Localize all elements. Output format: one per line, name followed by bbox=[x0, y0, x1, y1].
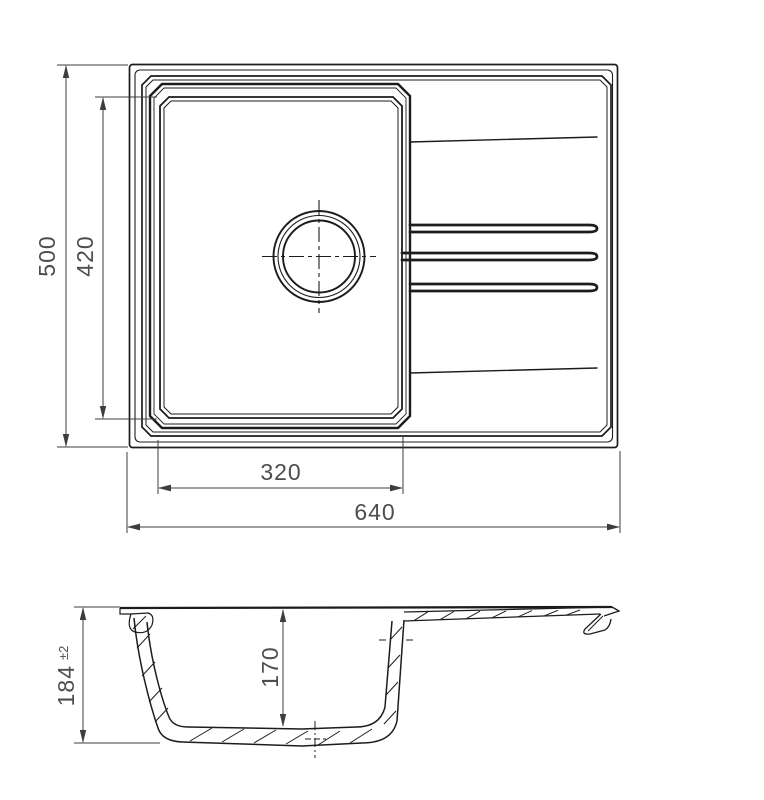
technical-drawing-canvas: 500 420 320 640 184±2 170 bbox=[0, 0, 764, 800]
dimension-height: 184±2 bbox=[51, 606, 81, 746]
drain-centerline bbox=[305, 721, 326, 758]
section-view bbox=[74, 607, 619, 758]
drainer-deck-section bbox=[404, 607, 619, 634]
dimension-bowl-depth: 170 bbox=[255, 607, 285, 727]
sink-drawing-svg bbox=[0, 0, 764, 800]
dimension-bowl-width: 320 bbox=[221, 457, 341, 487]
dimension-overall-depth: 500 bbox=[32, 196, 62, 316]
drainer-flutes bbox=[402, 137, 597, 373]
drain-circle bbox=[262, 200, 376, 313]
rim-opening bbox=[142, 76, 611, 436]
height-tolerance: ±2 bbox=[56, 646, 71, 660]
dimension-overall-width: 640 bbox=[315, 497, 435, 527]
dimension-bowl-length: 420 bbox=[70, 196, 100, 316]
section-top-surface bbox=[120, 607, 612, 608]
